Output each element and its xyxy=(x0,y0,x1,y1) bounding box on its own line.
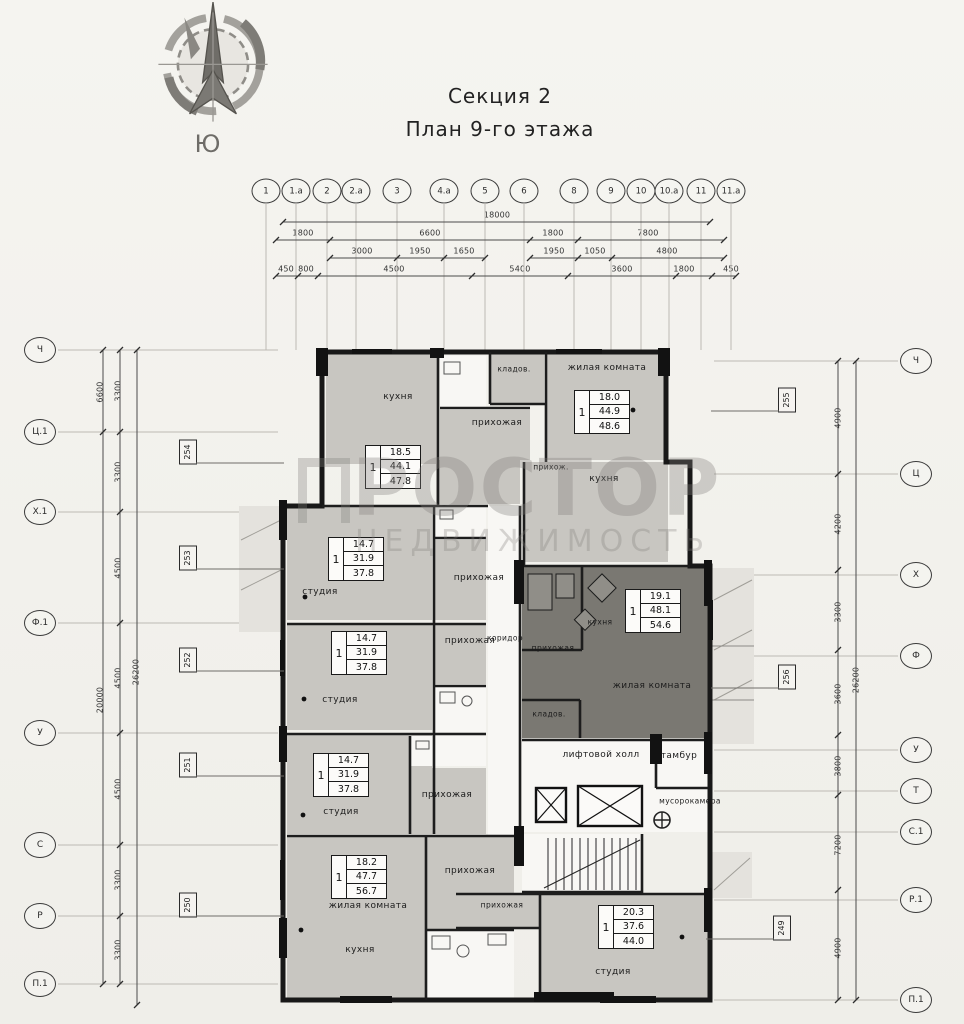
area-total: 44.0 xyxy=(614,934,653,948)
room-label: кладов. xyxy=(497,365,530,374)
room-label: кухня xyxy=(383,392,412,402)
room-label: прихожая xyxy=(481,901,524,910)
room-label: жилая комната xyxy=(329,901,408,911)
room-label: прихожая xyxy=(454,573,505,583)
apartment-stat-box: 1 14.7 31.9 37.8 xyxy=(313,753,369,797)
area-room: 18.2 xyxy=(347,856,386,870)
room-label: студия xyxy=(322,695,357,705)
area-room: 18.0 xyxy=(590,391,629,405)
room-label: прихожая xyxy=(472,418,523,428)
tag-leader-line xyxy=(196,569,284,570)
area-apartment: 44.9 xyxy=(590,405,629,419)
area-room: 14.7 xyxy=(347,632,386,646)
apartment-number-tag: 256 xyxy=(778,665,796,690)
rooms-count: 1 xyxy=(332,632,347,674)
apartment-number: 250 xyxy=(184,897,193,912)
area-total: 37.8 xyxy=(344,566,383,580)
room-label: жилая комната xyxy=(568,363,647,373)
room-label: прихожая xyxy=(532,644,575,653)
room-label: студия xyxy=(323,807,358,817)
tag-leader-line xyxy=(196,916,284,917)
watermark-tagline: НЕДВИЖИМОСТЬ xyxy=(355,524,711,559)
apartment-number-tag: 255 xyxy=(778,388,796,413)
room-label: кухня xyxy=(588,618,613,627)
tag-leader-line xyxy=(706,939,774,940)
tag-leader-line xyxy=(711,688,779,689)
area-apartment: 31.9 xyxy=(329,768,368,782)
room-label: студия xyxy=(595,967,630,977)
rooms-count: 1 xyxy=(626,590,641,632)
area-apartment: 48.1 xyxy=(641,604,680,618)
apartment-number-tag: 251 xyxy=(179,753,197,778)
apartment-number-tag: 249 xyxy=(773,916,791,941)
apartment-number-tag: 252 xyxy=(179,648,197,673)
apartment-number: 249 xyxy=(778,920,787,935)
watermark-brand: РОСТОР xyxy=(352,450,721,528)
room-label: лифтовой холл xyxy=(562,750,639,760)
tag-leader-line xyxy=(196,463,284,464)
rooms-count: 1 xyxy=(599,906,614,948)
room-label: кладов. xyxy=(532,710,565,719)
area-total: 37.8 xyxy=(329,782,368,796)
apartment-number: 255 xyxy=(783,392,792,407)
room-label: прихожая xyxy=(422,790,473,800)
area-room: 19.1 xyxy=(641,590,680,604)
apartment-stat-box: 1 18.0 44.9 48.6 xyxy=(574,390,630,434)
room-label: жилая комната xyxy=(613,681,692,691)
area-room: 20.3 xyxy=(614,906,653,920)
apartment-number: 251 xyxy=(184,757,193,772)
rooms-count: 1 xyxy=(332,856,347,898)
apartment-number-tag: 250 xyxy=(179,893,197,918)
apartment-number-tag: 254 xyxy=(179,440,197,465)
apartment-number: 256 xyxy=(783,669,792,684)
area-total: 54.6 xyxy=(641,618,680,632)
tag-leader-line xyxy=(711,411,779,412)
apartment-stat-box: 1 14.7 31.9 37.8 xyxy=(331,631,387,675)
room-label: кухня xyxy=(345,945,374,955)
apartment-stat-box: 1 20.3 37.6 44.0 xyxy=(598,905,654,949)
apartment-stat-box: 1 19.1 48.1 54.6 xyxy=(625,589,681,633)
watermark-logo xyxy=(298,458,350,523)
trash-chute-icon xyxy=(654,812,670,828)
elevator-shaft-icon xyxy=(536,786,642,826)
area-apartment: 31.9 xyxy=(347,646,386,660)
rooms-count: 1 xyxy=(329,538,344,580)
area-total: 37.8 xyxy=(347,660,386,674)
area-apartment: 37.6 xyxy=(614,920,653,934)
tag-leader-line xyxy=(196,671,284,672)
apartment-number-tag: 253 xyxy=(179,546,197,571)
apartment-number: 254 xyxy=(184,444,193,459)
apartment-stat-box: 1 18.2 47.7 56.7 xyxy=(331,855,387,899)
area-total: 48.6 xyxy=(590,419,629,433)
room-label: тамбур xyxy=(661,751,698,761)
room-label: мусорокамера xyxy=(659,797,721,806)
tag-leader-line xyxy=(196,776,284,777)
rooms-count: 1 xyxy=(575,391,590,433)
apartment-number: 252 xyxy=(184,652,193,667)
room-label: студия xyxy=(302,587,337,597)
rooms-count: 1 xyxy=(314,754,329,796)
room-label: прихожая xyxy=(445,866,496,876)
area-total: 56.7 xyxy=(347,884,386,898)
apartment-number: 253 xyxy=(184,550,193,565)
area-room: 14.7 xyxy=(329,754,368,768)
area-apartment: 47.7 xyxy=(347,870,386,884)
room-label: коридор xyxy=(487,634,523,643)
